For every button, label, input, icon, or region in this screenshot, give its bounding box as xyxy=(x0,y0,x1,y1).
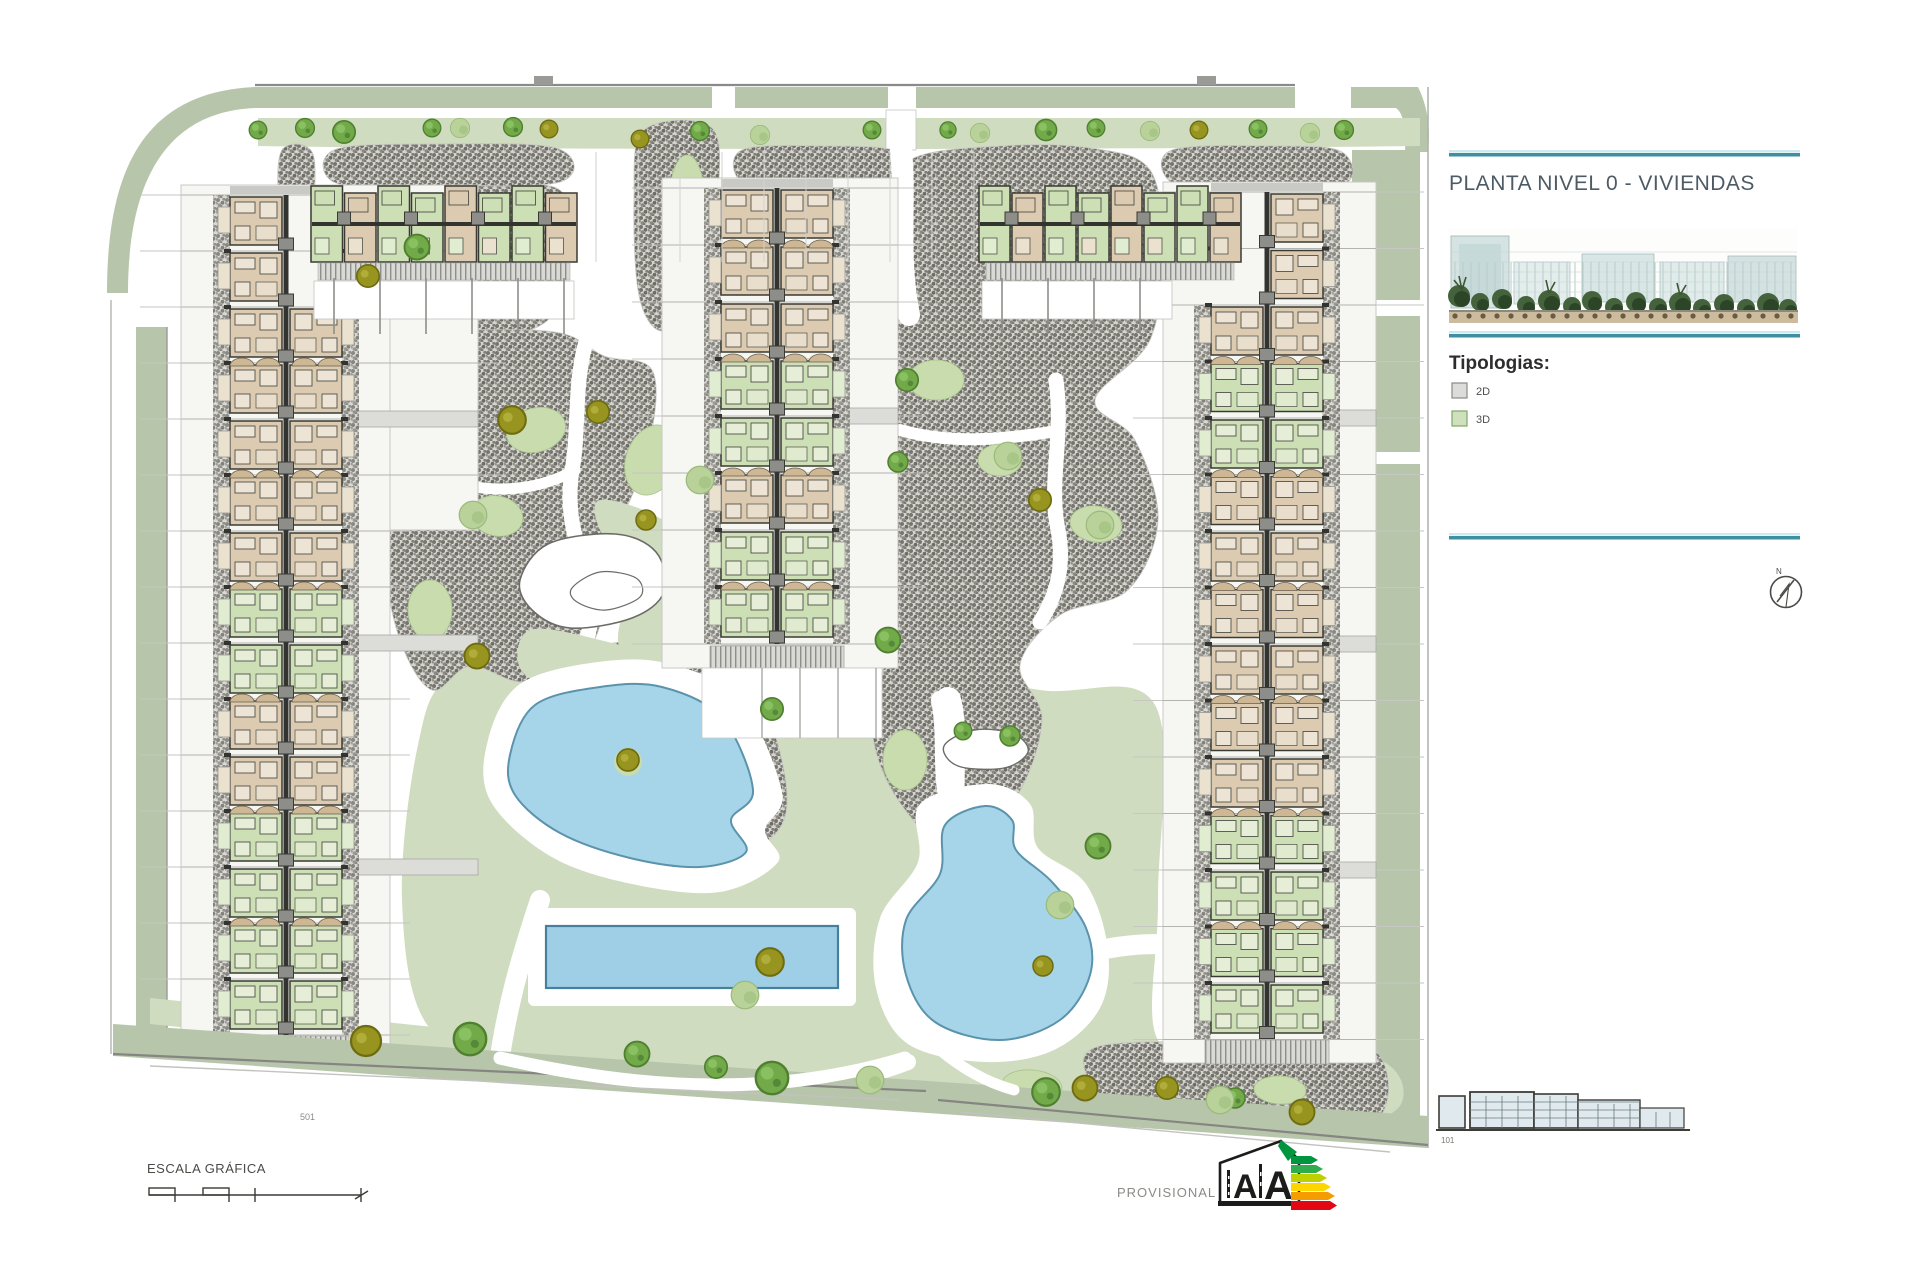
svg-text:A: A xyxy=(1233,1168,1258,1206)
svg-text:N: N xyxy=(1776,567,1782,576)
svg-text:101: 101 xyxy=(1441,1136,1455,1145)
svg-text:501: 501 xyxy=(300,1112,315,1122)
svg-text:PLANTA NIVEL 0 - VIVIENDAS: PLANTA NIVEL 0 - VIVIENDAS xyxy=(1449,172,1755,195)
svg-text:A: A xyxy=(1264,1164,1293,1208)
svg-text:3D: 3D xyxy=(1476,414,1490,426)
svg-text:ESCALA GRÁFICA: ESCALA GRÁFICA xyxy=(147,1161,266,1176)
svg-text:2D: 2D xyxy=(1476,386,1490,398)
svg-text:Tipologias:: Tipologias: xyxy=(1449,353,1550,374)
svg-text:PROVISIONAL: PROVISIONAL xyxy=(1117,1185,1216,1200)
